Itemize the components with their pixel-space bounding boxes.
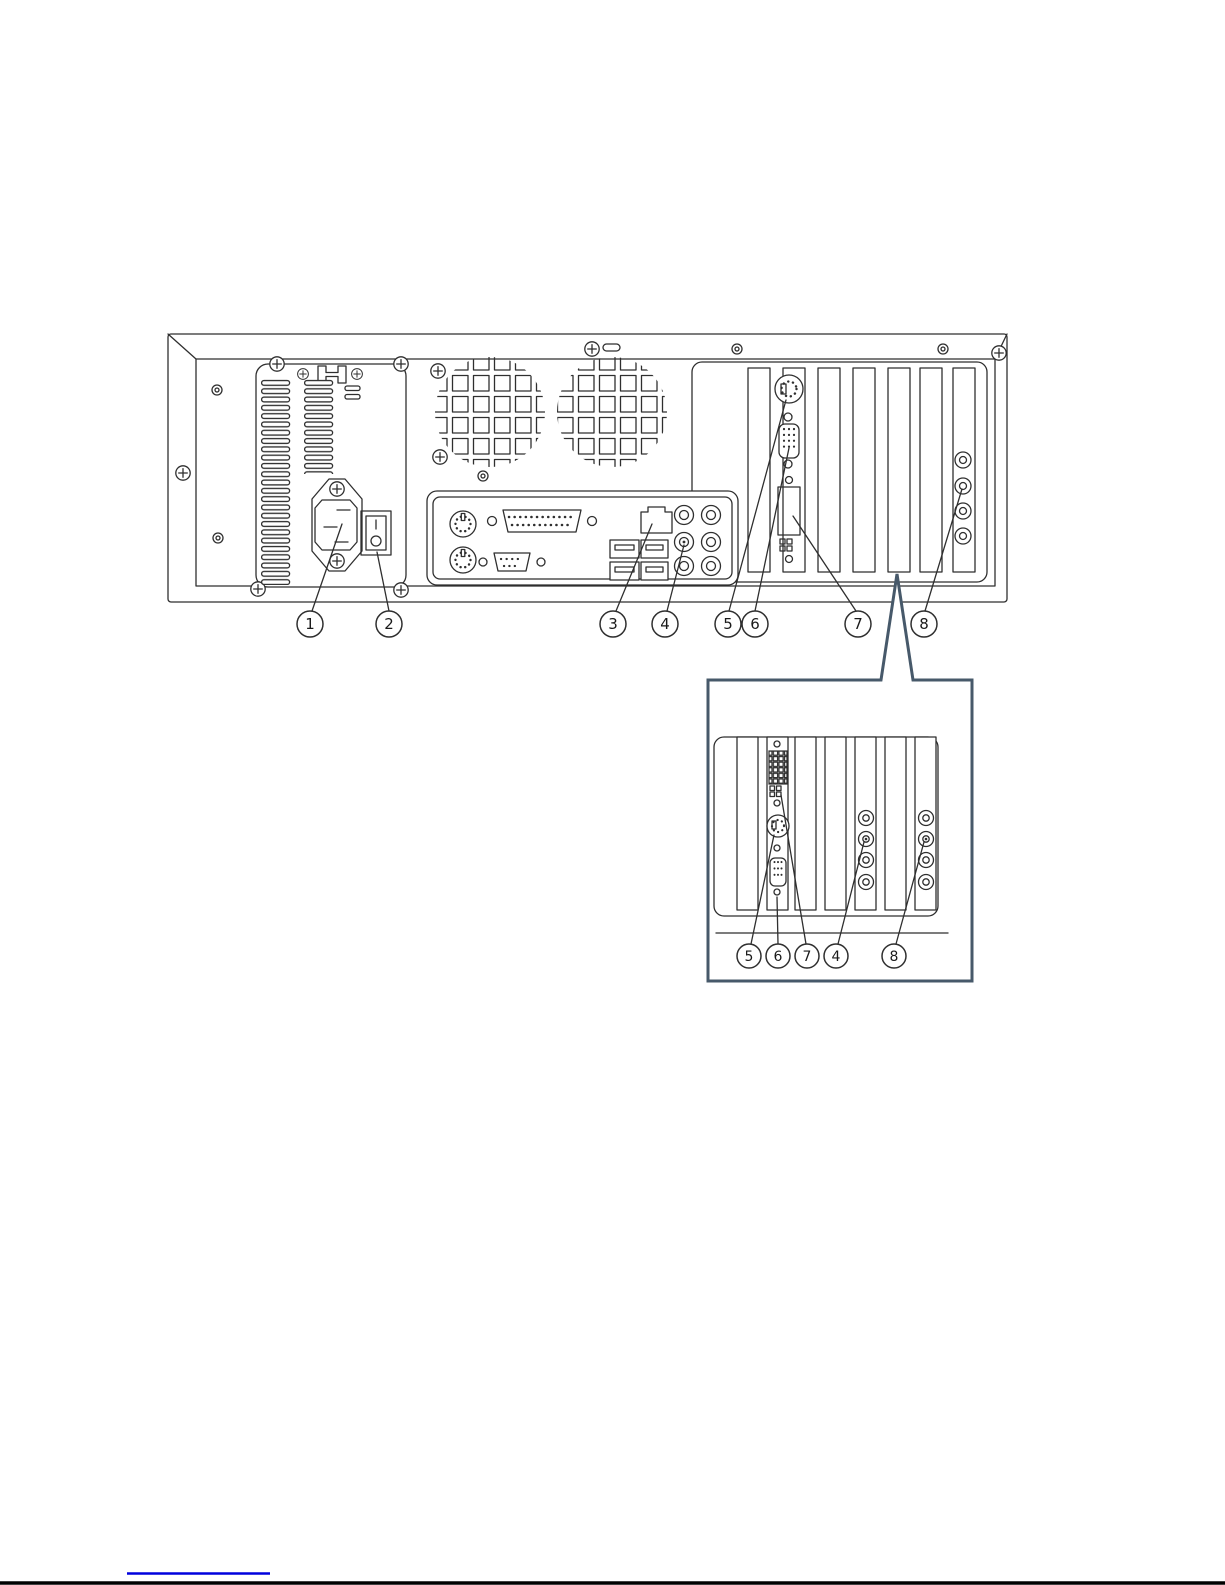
slot-bracket [737,737,758,910]
phillips-screw-icon [270,357,284,371]
callout-7: 7 [845,611,871,637]
document-page: 1 2 3 4 5 6 7 8 [0,0,1225,1585]
inset-callout-7: 7 [795,944,819,968]
vent-slots-right [304,379,334,474]
inset-callout-8: 8 [882,944,906,968]
callout-1: 1 [297,611,323,637]
callout-6: 6 [742,611,768,637]
phillips-screw-icon [330,554,344,568]
ps2-mouse-port [450,547,476,573]
svg-text:3: 3 [608,615,618,633]
inset-callout-6: 6 [766,944,790,968]
slot-bracket [818,368,840,572]
callout-8: 8 [911,611,937,637]
slot-bracket [853,368,875,572]
inset-callout-5: 5 [737,944,761,968]
callout-4: 4 [652,611,678,637]
phillips-screw-icon [585,342,599,356]
svg-text:7: 7 [803,949,812,965]
slot-bracket [888,368,910,572]
rear-panel-diagram-canvas: 1 2 3 4 5 6 7 8 [0,0,1225,1585]
callout-3: 3 [600,611,626,637]
phillips-screw-icon [352,369,363,380]
svg-text:6: 6 [774,949,783,965]
audio-jack [955,528,971,544]
phillips-screw-icon [298,369,309,380]
rivet-icon [478,471,488,481]
rivet-icon [938,344,948,354]
fan-grille-right [557,357,667,467]
callout-5: 5 [715,611,741,637]
svg-text:7: 7 [853,615,863,633]
page-footer [0,1574,1225,1584]
svg-text:2: 2 [384,615,394,633]
phillips-screw-icon [176,466,190,480]
svg-text:4: 4 [660,615,670,633]
svg-text:5: 5 [745,949,754,965]
audio-jack [955,452,971,468]
svg-text:8: 8 [890,949,899,965]
rivet-icon [213,533,223,543]
leader-target-dot [865,838,868,841]
svg-text:6: 6 [750,615,760,633]
dvi-port [769,751,787,784]
phillips-screw-icon [433,450,447,464]
callout-2: 2 [376,611,402,637]
audio-jack [955,478,971,494]
phillips-screw-icon [330,482,344,496]
slot-bracket [885,737,906,910]
ps2-keyboard-port [450,511,476,537]
vent-slots-left [261,379,291,585]
phillips-screw-icon [394,583,408,597]
svg-text:4: 4 [832,949,841,965]
leader-target-dot [683,541,686,544]
phillips-screw-icon [431,364,445,378]
inset-callout-4: 4 [824,944,848,968]
svg-text:5: 5 [723,615,733,633]
svg-text:8: 8 [919,615,929,633]
slot-bracket [795,737,816,910]
svideo-port [775,375,803,403]
slot-bracket [825,737,846,910]
phillips-screw-icon [394,357,408,371]
io-shield [427,491,738,585]
fan-grille-left [435,357,545,467]
svg-text:1: 1 [305,615,315,633]
leader-target-dot [925,838,928,841]
phillips-screw-icon [992,346,1006,360]
slot-bracket [920,368,942,572]
chassis-rear-view: 1 2 3 4 5 6 7 8 [168,334,1007,637]
rivet-icon [212,385,222,395]
rivet-icon [732,344,742,354]
inset-graphics-card-bracket [767,741,789,895]
power-inlet [312,479,362,571]
